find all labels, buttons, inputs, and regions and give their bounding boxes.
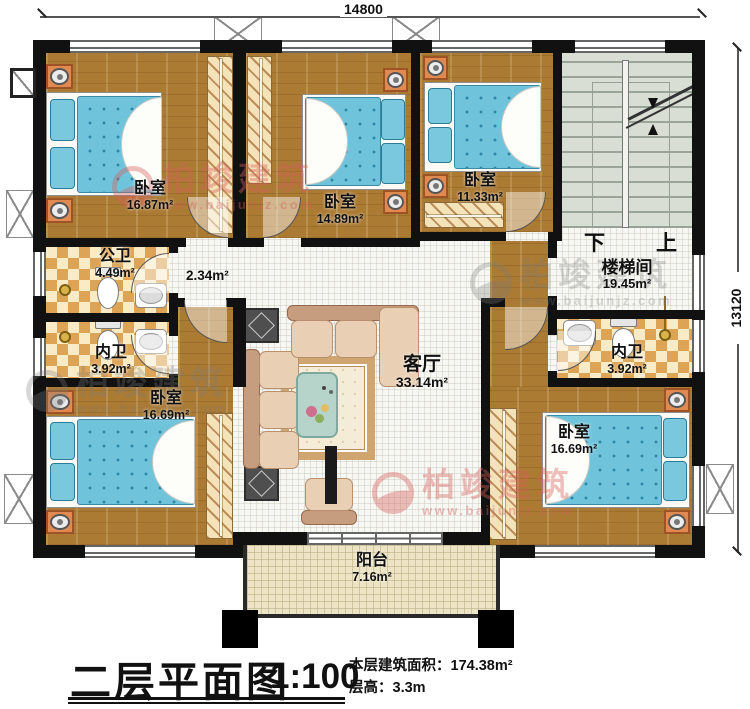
floor-area-row: 本层建筑面积：174.38m²: [349, 655, 513, 677]
flower-decor: [315, 414, 324, 423]
balcony-column: [478, 610, 514, 648]
wall-segment: [420, 232, 506, 241]
wall-segment: [553, 53, 562, 241]
room-label-ensuite-right: 内卫 3.92m²: [590, 344, 664, 376]
wall-segment: [233, 53, 246, 238]
wall-outer-left: [33, 40, 46, 558]
wall-segment: [548, 310, 692, 319]
stair-rail: [622, 60, 629, 228]
window: [535, 545, 655, 558]
stair-down-label: 下: [584, 227, 605, 257]
bed-tm-pillow: [381, 99, 405, 140]
exterior-vent-box-icon: [4, 474, 34, 524]
wall-segment: [301, 238, 411, 247]
room-label-ensuite-left: 内卫 3.92m²: [74, 344, 148, 376]
bed-bl-pillow: [50, 463, 75, 501]
window: [575, 40, 665, 53]
window: [70, 40, 200, 53]
room-label-bedroom-tm: 卧室 14.89m²: [290, 194, 390, 226]
nightstand: [46, 198, 73, 223]
wall-segment: [33, 238, 186, 247]
heater-knob-icon: [59, 331, 71, 343]
wardrobe-bedroom-tm: [247, 56, 272, 184]
room-label-living: 客厅 33.14m²: [374, 354, 470, 391]
wall-segment: [548, 232, 557, 258]
stair-arrow-down-icon: [648, 98, 658, 109]
window: [282, 40, 392, 53]
armchair-back: [301, 510, 357, 525]
sofa-cushion: [291, 320, 333, 358]
room-label-bedroom-br: 卧室 16.69m²: [524, 424, 624, 456]
floor-area-value: 174.38m²: [451, 658, 513, 674]
nightstand: [423, 56, 448, 80]
bed-br-pillow: [663, 418, 687, 458]
wall-segment: [490, 298, 505, 307]
sofa-cushion: [335, 320, 377, 358]
flue-box: [10, 68, 36, 98]
room-label-bedroom-bl: 卧室 16.69m²: [116, 390, 216, 422]
window: [692, 320, 705, 372]
wall-segment: [33, 313, 178, 322]
room-label-bedroom-tl: 卧室 16.87m²: [100, 180, 200, 212]
nightstand: [46, 390, 74, 414]
exterior-vent-box-icon: [706, 464, 734, 514]
bed-bl-pillow: [50, 422, 75, 460]
wall-segment: [557, 378, 692, 387]
wardrobe-bedroom-br: [489, 408, 517, 540]
room-label-public-bath: 公卫 4.49m²: [78, 248, 152, 280]
title-info: 本层建筑面积：174.38m² 层高：3.3m: [349, 655, 513, 699]
wall-segment: [548, 318, 557, 335]
title-underline: [68, 697, 345, 704]
bed-br-pillow: [663, 461, 687, 501]
nightstand: [664, 388, 690, 412]
balcony-sliding-door: [307, 532, 443, 545]
corridor-area-label: 2.34m²: [186, 268, 256, 283]
scale-label: 1:100: [270, 657, 360, 697]
wall-segment: [481, 298, 490, 545]
room-label-balcony: 阳台 7.16m²: [330, 552, 414, 584]
bed-tm-pillow: [381, 143, 405, 184]
wall-segment: [443, 532, 487, 545]
stair-up-label: 上: [656, 227, 677, 257]
wall-segment: [228, 238, 246, 247]
exterior-vent-box-icon: [6, 190, 34, 238]
window: [33, 252, 46, 296]
bed-tr-pillow: [428, 127, 452, 163]
wall-segment: [233, 532, 307, 545]
wall-segment: [169, 247, 178, 253]
wardrobe-bedroom-bl: [206, 413, 233, 539]
window: [85, 545, 195, 558]
floor-height-value: 3.3m: [393, 680, 426, 696]
balcony-column: [222, 610, 258, 648]
room-label-bedroom-tr: 卧室 11.33m²: [430, 172, 530, 204]
window: [692, 466, 705, 526]
bed-tl-pillow: [50, 147, 75, 189]
side-table: [244, 466, 279, 501]
nightstand: [383, 68, 408, 92]
table-dot: [322, 386, 326, 390]
window: [692, 255, 705, 310]
wall-segment: [233, 298, 246, 387]
nightstand: [664, 510, 690, 534]
window: [432, 40, 532, 53]
wall-segment: [548, 371, 557, 387]
bed-tr-pillow: [428, 88, 452, 124]
floor-area-label: 本层建筑面积：: [349, 658, 451, 674]
bed-tl-pillow: [50, 99, 75, 141]
coffee-table: [296, 372, 338, 438]
sofa-cushion: [259, 431, 299, 469]
nightstand: [46, 510, 74, 534]
room-label-stairwell: 楼梯间 19.45m²: [570, 258, 684, 292]
heater-knob-icon: [659, 329, 671, 341]
wall-segment: [411, 53, 420, 247]
dimension-width-label: 14800: [340, 1, 387, 17]
table-dot: [329, 390, 333, 394]
stair-arrow-up-icon: [648, 124, 658, 135]
sofa-cushion: [259, 391, 299, 429]
wardrobe-bedroom-tr: [424, 202, 504, 228]
floor-plan-page: { "title_block": { "title": "二层平面图", "sc…: [0, 0, 750, 709]
floor-height-label: 层高：: [349, 680, 393, 696]
heater-knob-icon: [59, 284, 71, 296]
window: [33, 338, 46, 376]
floor-height-row: 层高：3.3m: [349, 677, 513, 699]
wall-segment: [33, 378, 178, 387]
nightstand: [46, 64, 73, 89]
wall-segment: [246, 238, 264, 247]
dimension-height-label: 13120: [728, 272, 744, 344]
side-table: [244, 308, 279, 343]
tv: [325, 446, 337, 504]
flower-decor: [321, 404, 329, 412]
